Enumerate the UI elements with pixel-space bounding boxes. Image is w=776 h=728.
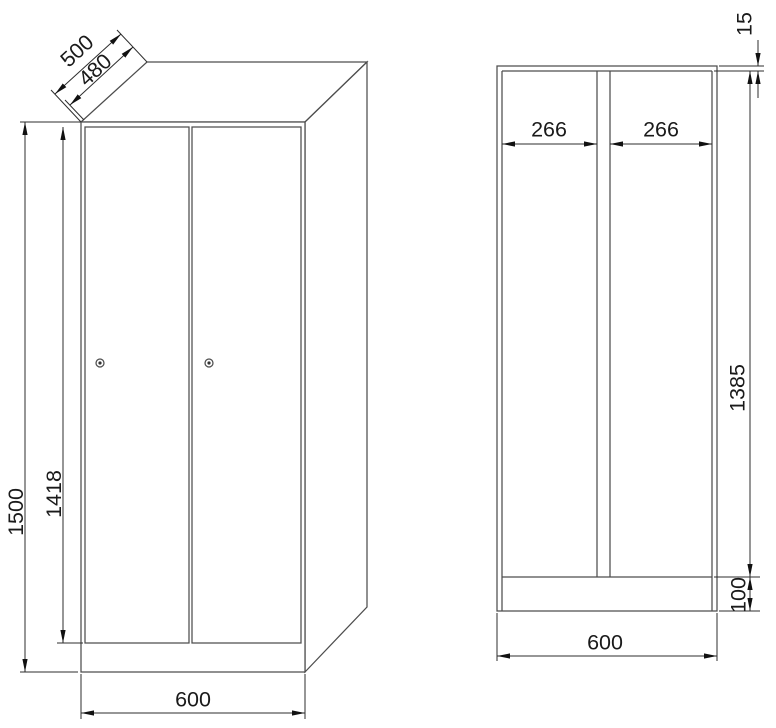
dim-door-height: 1418 — [42, 127, 83, 643]
dim-plinth-height-label: 100 — [727, 577, 751, 613]
dim-plinth-height: 100 — [719, 577, 760, 613]
dim-door-height-label: 1418 — [42, 470, 66, 518]
cabinet-section-outline — [497, 66, 717, 611]
technical-drawing-svg: 1500 1418 500 480 — [0, 0, 776, 728]
dim-top-panel-label: 15 — [733, 12, 757, 36]
right-side-face — [305, 62, 367, 672]
dim-width-total-front-label: 600 — [587, 631, 623, 655]
dim-right-compartment-label: 266 — [643, 118, 679, 142]
dim-top-panel: 15 — [714, 12, 764, 98]
locker-dimension-diagram: 1500 1418 500 480 — [0, 0, 776, 728]
front-face — [81, 122, 305, 672]
dim-width-total-perspective-label: 600 — [175, 688, 211, 712]
dim-width-total-front: 600 — [497, 613, 717, 661]
dim-interior-height: 1385 — [714, 71, 760, 577]
locker-body — [81, 62, 367, 672]
perspective-view: 1500 1418 500 480 — [4, 30, 367, 719]
dim-height-total: 1500 — [4, 122, 80, 672]
dim-left-compartment-label: 266 — [531, 118, 567, 142]
front-section-view: 266 266 15 1385 — [497, 12, 764, 661]
dim-height-total-label: 1500 — [4, 488, 28, 536]
dim-width-total-perspective: 600 — [81, 674, 305, 719]
dim-interior-height-label: 1385 — [726, 364, 750, 412]
outer-frame — [497, 66, 717, 611]
